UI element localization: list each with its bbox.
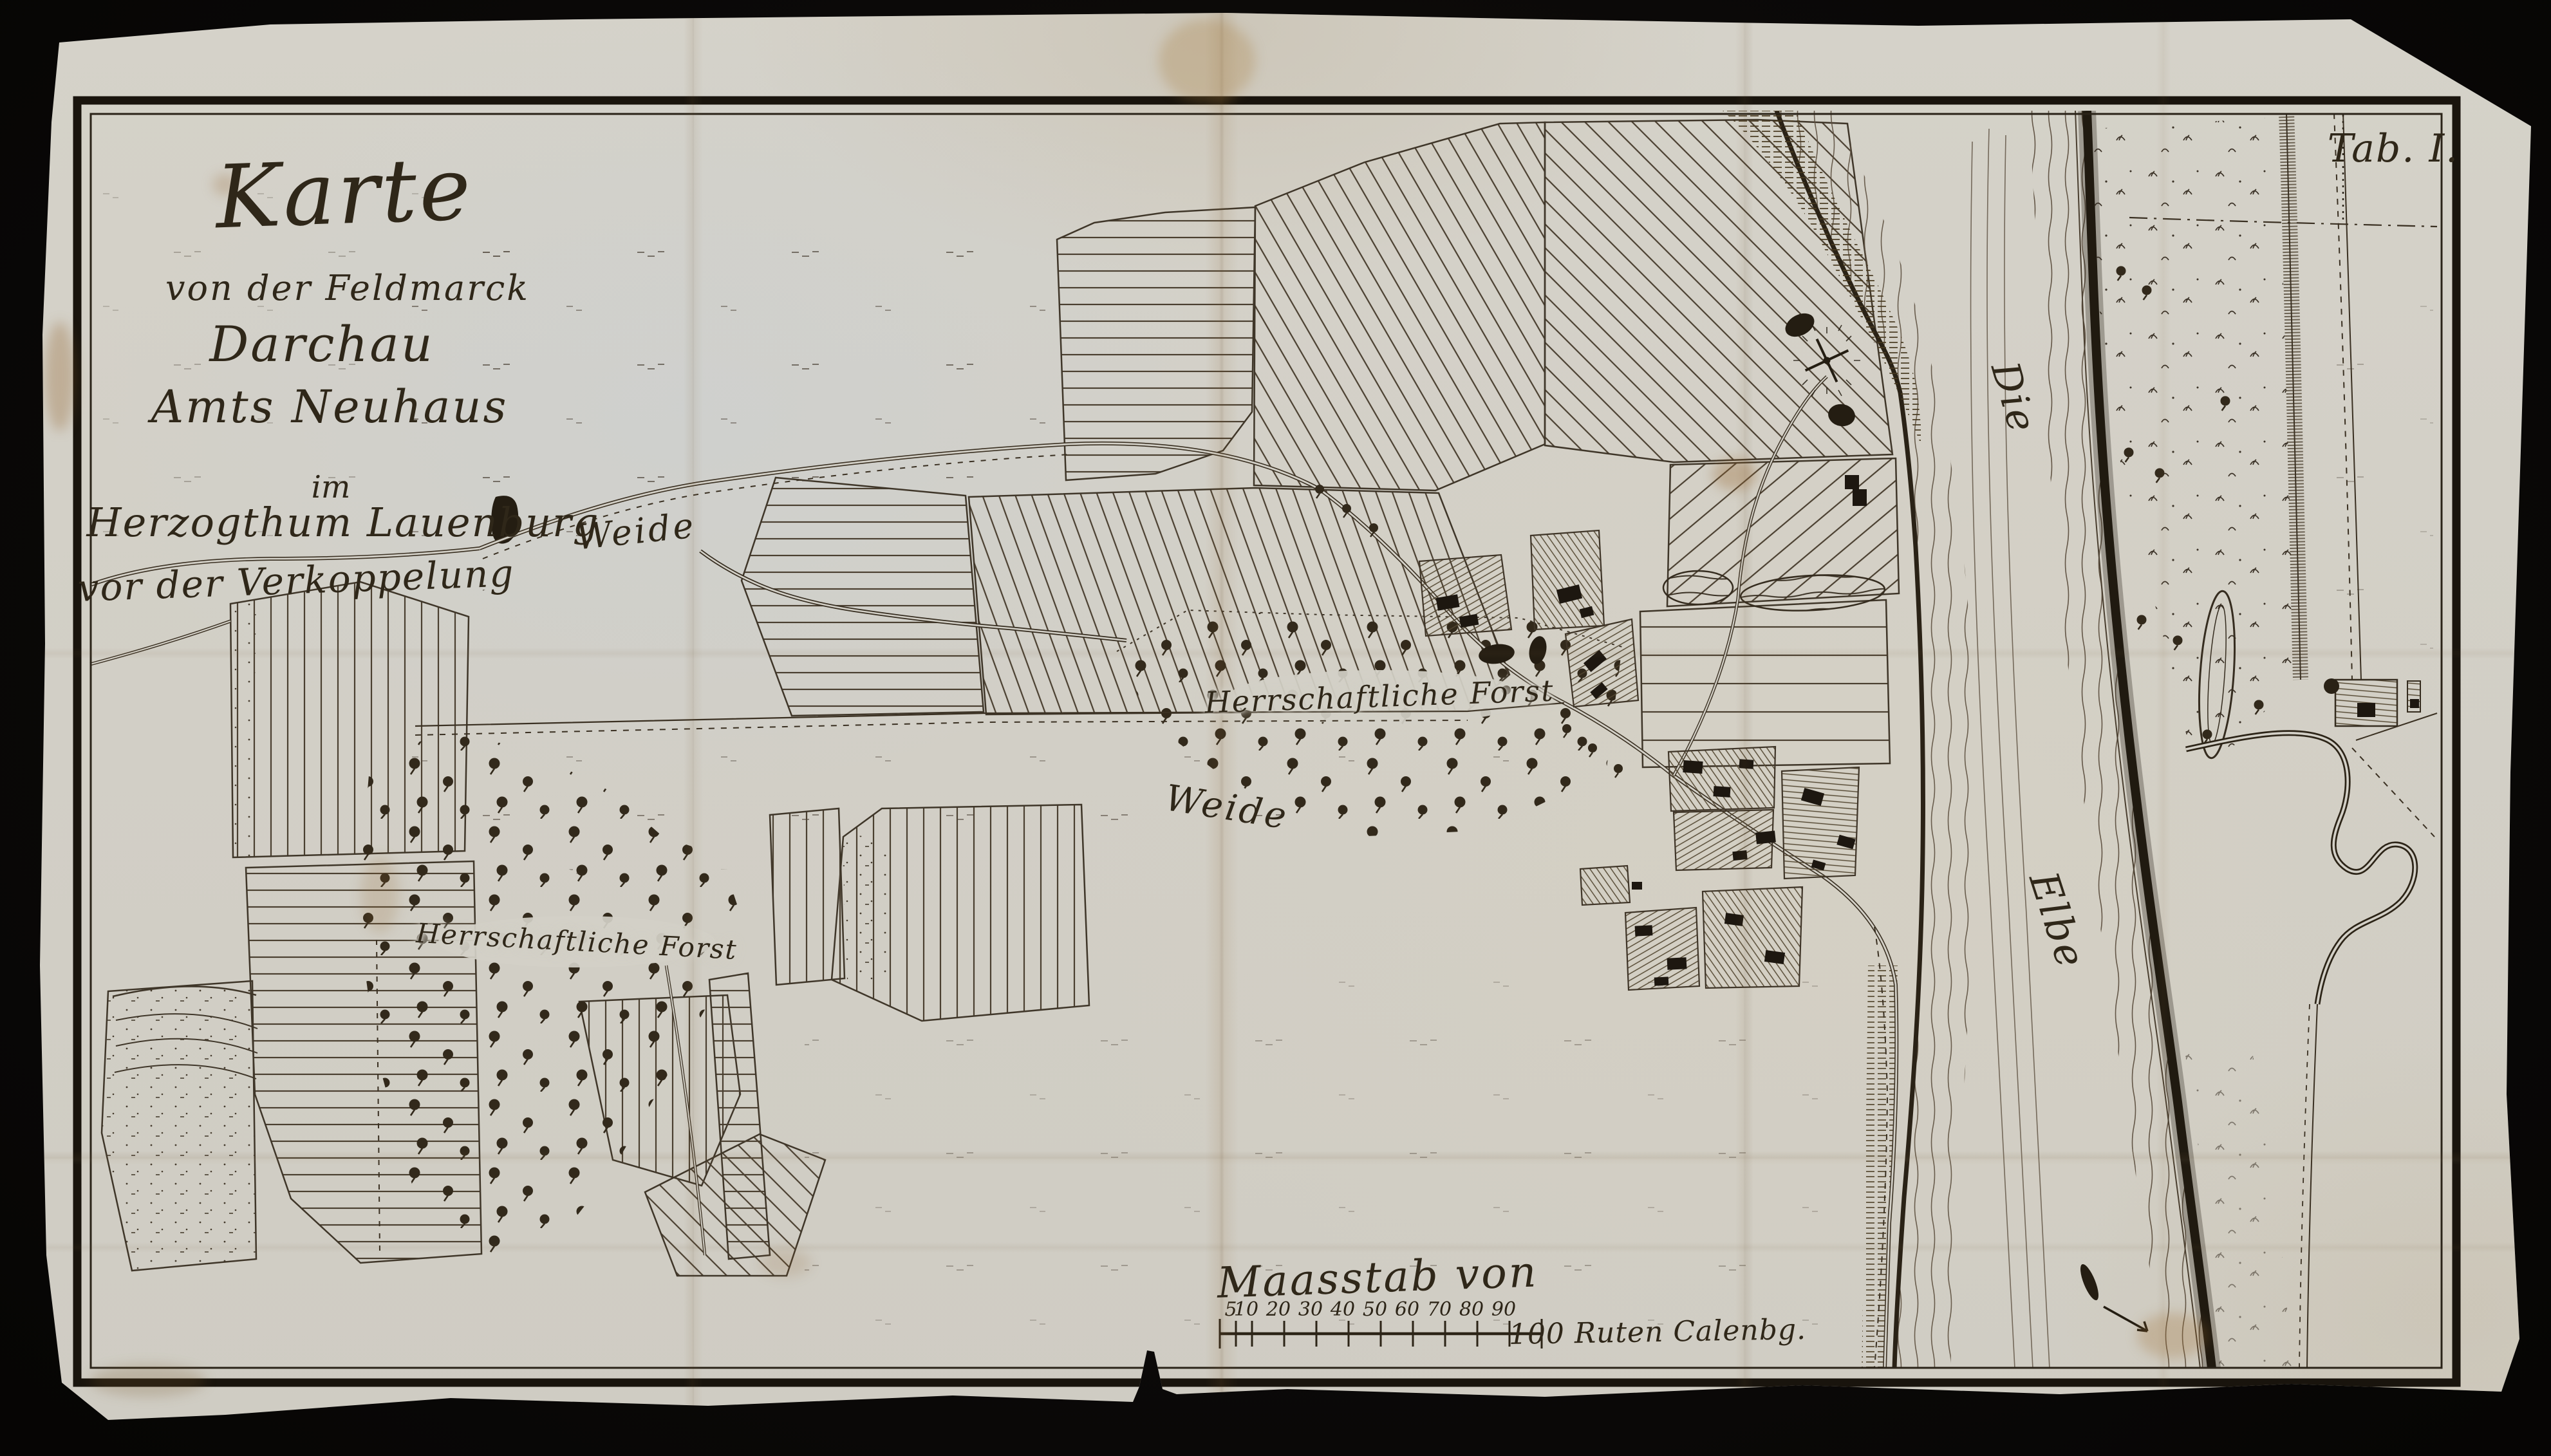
map-title-line4: Amts Neuhaus: [151, 384, 509, 429]
plate-number: Tab. I.: [2328, 129, 2459, 168]
map-title-line6: Herzogthum Lauenburg: [87, 503, 600, 543]
map-title-line5: im: [312, 472, 351, 503]
svg-text:80: 80: [1459, 1298, 1484, 1321]
svg-text:90: 90: [1491, 1298, 1516, 1321]
map-title-line3: Darchau: [209, 320, 434, 369]
sandbar-islet: [2077, 1262, 2102, 1302]
scale-end-label: 100 Ruten Calenbg.: [1509, 1316, 1807, 1349]
svg-text:70: 70: [1427, 1298, 1452, 1321]
svg-text:60: 60: [1395, 1298, 1419, 1321]
map-title-line2: von der Feldmarck: [165, 271, 530, 306]
flow-direction-arrow: [2104, 1307, 2147, 1331]
east-stream: [2186, 733, 2415, 1004]
river-midstream-lines: [1971, 129, 2050, 1368]
photo-backdrop: 5 10 20 30 40 50 60 70 80 90: [0, 0, 2551, 1456]
east-farmstead: [2324, 678, 2420, 726]
map-sheet: 5 10 20 30 40 50 60 70 80 90: [0, 0, 2551, 1456]
map-title-main: Karte: [214, 145, 474, 241]
scale-caption: Maasstab von: [1217, 1251, 1539, 1304]
